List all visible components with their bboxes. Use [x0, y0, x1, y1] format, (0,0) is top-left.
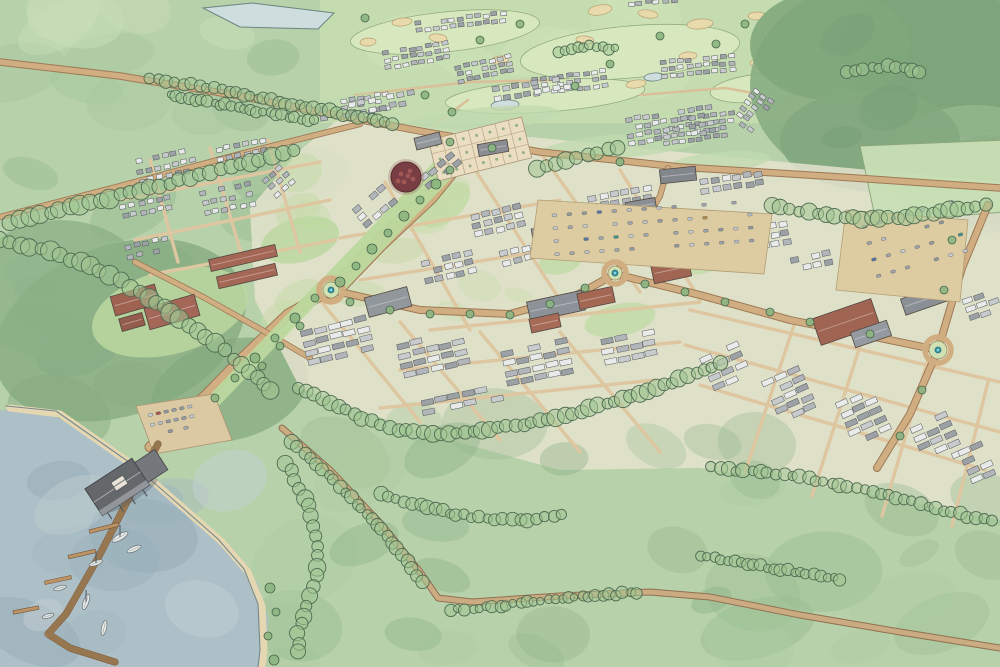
illustration-canvas [0, 0, 1000, 667]
master-plan-illustration [0, 0, 1000, 667]
paper-glaze [0, 0, 1000, 667]
